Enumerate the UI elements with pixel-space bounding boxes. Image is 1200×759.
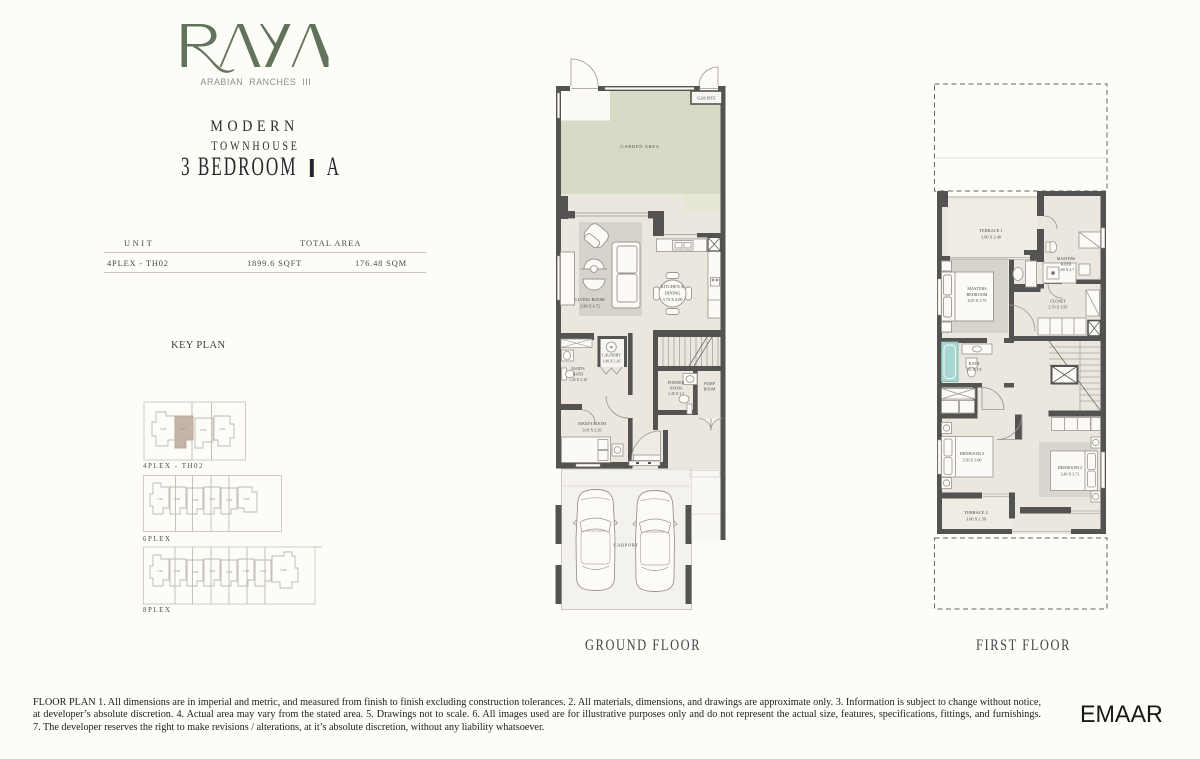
svg-text:1.60 X 4.7: 1.60 X 4.7 [1058,268,1074,272]
svg-text:3.70 X 4.00: 3.70 X 4.00 [663,297,683,302]
svg-text:BEDROOM 3: BEDROOM 3 [960,451,984,456]
svg-text:GARDEN AREA: GARDEN AREA [620,144,659,149]
svg-text:TH08: TH08 [280,568,287,572]
svg-text:TH02: TH02 [180,427,187,431]
svg-text:TH06: TH06 [243,497,250,501]
svg-text:TH05: TH05 [226,570,233,574]
svg-text:1.45 X 1.5: 1.45 X 1.5 [668,392,684,396]
svg-text:2.80 X 4.72: 2.80 X 4.72 [580,304,600,309]
svg-text:MASTERS: MASTERS [967,286,987,291]
svg-text:MAID'S: MAID'S [571,367,584,371]
svg-text:MASTERS: MASTERS [1057,256,1075,261]
svg-text:3.01 X 2.10: 3.01 X 2.10 [583,428,602,433]
svg-text:BEDROOM: BEDROOM [967,292,988,297]
svg-text:GAS SITE: GAS SITE [697,96,716,101]
svg-text:MAID'S ROOM: MAID'S ROOM [578,421,606,426]
svg-text:TH03: TH03 [192,570,199,574]
svg-text:TERRACE 1: TERRACE 1 [979,228,1002,233]
svg-text:3.00 X 2.40: 3.00 X 2.40 [981,235,1001,240]
svg-text:TH04: TH04 [219,427,226,431]
svg-text:TH03: TH03 [192,498,199,502]
svg-text:3.00 X 1.50: 3.00 X 1.50 [966,517,986,522]
svg-text:TH04: TH04 [209,569,216,573]
svg-text:3.40 X 3.71: 3.40 X 3.71 [1061,472,1080,477]
svg-text:TH03: TH03 [200,428,207,432]
svg-text:TH04: TH04 [209,497,216,501]
svg-text:2.0 X 1.9: 2.0 X 1.9 [967,367,982,372]
svg-text:CLOSET: CLOSET [1050,299,1066,304]
svg-text:BEDROOM 2: BEDROOM 2 [1058,465,1082,470]
svg-text:3.50 X 3.00: 3.50 X 3.00 [963,458,982,463]
svg-text:LIVING ROOM: LIVING ROOM [575,297,604,302]
svg-text:TH07: TH07 [260,569,267,573]
svg-text:ROOM: ROOM [704,388,716,392]
svg-text:BATH: BATH [1061,262,1072,267]
svg-text:PUMP: PUMP [704,382,715,386]
svg-text:1.45 X 2.10: 1.45 X 2.10 [569,378,587,382]
svg-text:TH01: TH01 [157,497,164,501]
svg-text:DINING: DINING [665,291,681,296]
svg-text:4.05 X 3.75: 4.05 X 3.75 [968,298,987,303]
svg-text:ROOM: ROOM [670,387,682,391]
svg-text:TH02: TH02 [174,569,181,573]
svg-text:KITCHEN &: KITCHEN & [661,284,685,289]
svg-text:TH05: TH05 [226,498,233,502]
svg-text:1.90 X 1.10: 1.90 X 1.10 [603,360,621,364]
svg-text:POWDER: POWDER [668,381,685,385]
svg-text:2.70 X 1.95: 2.70 X 1.95 [1049,305,1068,310]
svg-text:LAUNDRY: LAUNDRY [602,354,621,358]
svg-text:TH01: TH01 [160,427,167,431]
svg-text:TERRACE 2: TERRACE 2 [964,510,987,515]
svg-text:TH06: TH06 [243,569,250,573]
svg-text:BATH: BATH [969,361,980,366]
svg-text:TH01: TH01 [157,569,164,573]
svg-text:BATH: BATH [573,373,583,377]
svg-text:CARPORT: CARPORT [613,543,638,548]
svg-text:TH02: TH02 [174,497,181,501]
